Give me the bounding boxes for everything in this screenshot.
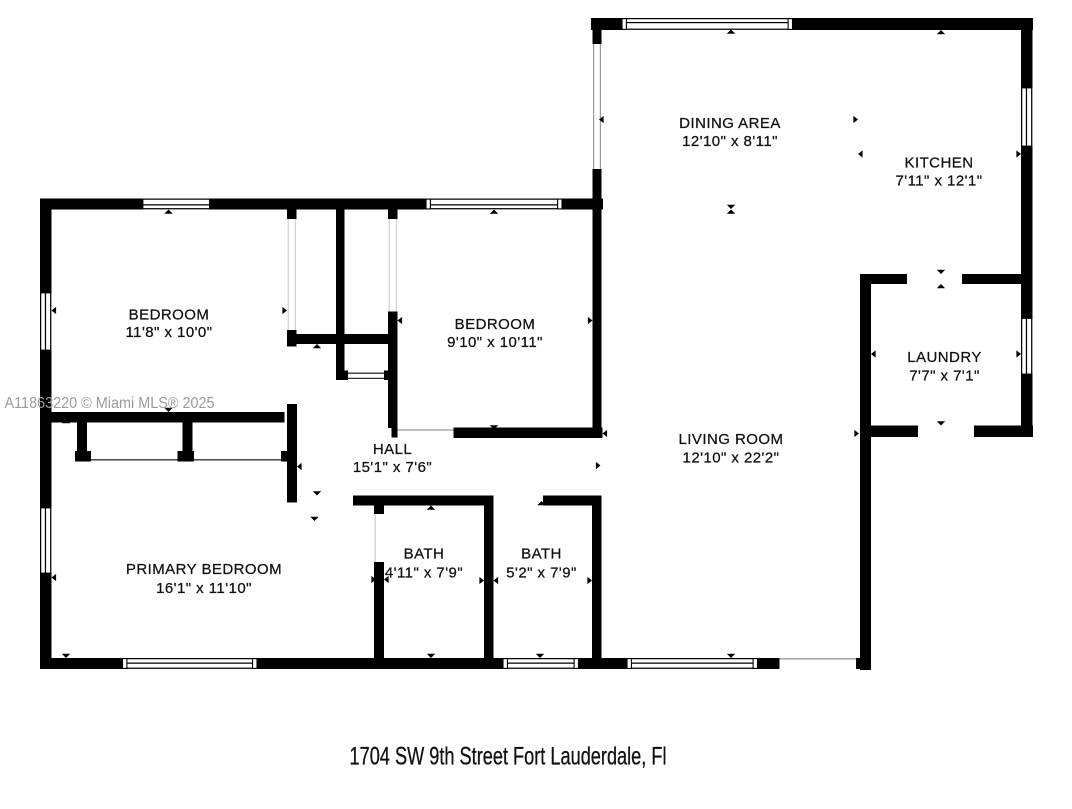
svg-text:BEDROOM: BEDROOM	[455, 316, 536, 333]
svg-text:12'10" x 22'2": 12'10" x 22'2"	[683, 450, 780, 467]
svg-text:1704 SW 9th Street Fort Lauder: 1704 SW 9th Street Fort Lauderdale, Fl	[350, 743, 667, 771]
svg-text:HALL: HALL	[373, 441, 412, 458]
svg-text:9'10" x 10'11": 9'10" x 10'11"	[447, 334, 543, 351]
svg-text:BEDROOM: BEDROOM	[129, 307, 210, 324]
svg-text:4'11" x 7'9": 4'11" x 7'9"	[385, 565, 463, 582]
svg-text:7'7" x 7'1": 7'7" x 7'1"	[909, 368, 980, 385]
svg-text:LIVING ROOM: LIVING ROOM	[679, 431, 784, 448]
svg-text:7'11" x 12'1": 7'11" x 12'1"	[895, 173, 982, 190]
svg-text:DINING AREA: DINING AREA	[679, 115, 781, 132]
svg-text:5'2" x 7'9": 5'2" x 7'9"	[506, 565, 577, 582]
svg-text:PRIMARY BEDROOM: PRIMARY BEDROOM	[126, 561, 282, 578]
svg-text:11'8" x 10'0": 11'8" x 10'0"	[125, 324, 212, 341]
svg-text:BATH: BATH	[404, 546, 445, 563]
svg-text:KITCHEN: KITCHEN	[905, 155, 974, 172]
svg-text:A11863220 © Miami MLS® 2025: A11863220 © Miami MLS® 2025	[5, 395, 215, 412]
svg-text:BATH: BATH	[521, 546, 562, 563]
svg-text:15'1" x 7'6": 15'1" x 7'6"	[353, 459, 432, 476]
svg-text:16'1" x 11'10": 16'1" x 11'10"	[156, 580, 252, 597]
svg-text:LAUNDRY: LAUNDRY	[907, 349, 982, 366]
svg-text:12'10" x 8'11": 12'10" x 8'11"	[682, 133, 778, 150]
